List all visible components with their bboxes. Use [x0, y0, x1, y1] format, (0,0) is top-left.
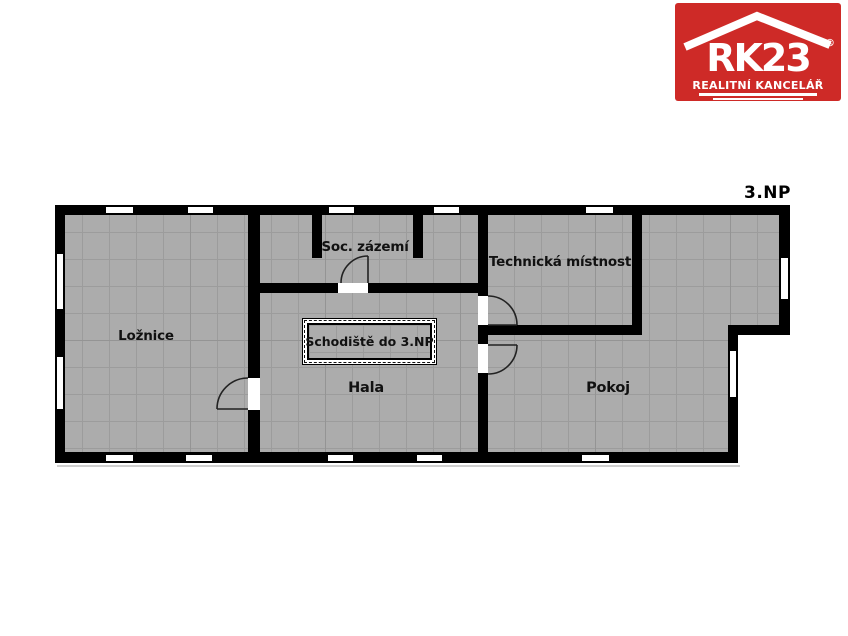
window [105, 206, 134, 214]
window [780, 257, 789, 300]
window [187, 206, 214, 214]
door-opening-soc-zazemi [338, 283, 368, 293]
wall-exterior-left [55, 205, 65, 463]
screenshot: Schodiště do 3.NP Ložnice Soc. zázemí Te… [0, 0, 848, 636]
logo-underline-2 [713, 98, 803, 101]
door-opening-loznice [248, 378, 260, 410]
window [433, 206, 460, 214]
wall-exterior-top [55, 205, 790, 215]
wall-hala-lower [478, 373, 488, 452]
wall-loznice-lower [248, 410, 260, 452]
logo-underline-1 [699, 93, 817, 96]
registered-trademark-icon: ® [825, 38, 835, 49]
staircase: Schodiště do 3.NP [302, 318, 437, 365]
wall-soc-zazemi-right [368, 283, 488, 293]
room-label-pokoj: Pokoj [586, 380, 630, 396]
window [327, 454, 354, 462]
floor-level-label: 3.NP [744, 183, 791, 203]
room-label-soc-zazemi: Soc. zázemí [321, 239, 408, 255]
wall-soc-zazemi-left [248, 283, 338, 293]
window [56, 356, 64, 410]
wall-exterior-bottom [55, 452, 738, 463]
door-opening-pokoj [478, 344, 488, 373]
window [56, 253, 64, 310]
door-opening-technicka [478, 296, 488, 325]
window [581, 454, 610, 462]
window [729, 350, 737, 398]
room-label-hala: Hala [348, 380, 384, 396]
wall-technicka-right [632, 215, 642, 325]
window [328, 206, 355, 214]
logo-brand-text: RK23 [675, 39, 841, 77]
rk23-logo: RK23 ® REALITNÍ KANCELÁŘ [675, 3, 841, 101]
wall-technicka-bottom [478, 325, 642, 335]
window [416, 454, 443, 462]
plan-shadow-line [57, 465, 740, 467]
wall-loznice-upper [248, 215, 260, 378]
window [105, 454, 134, 462]
wall-stub-right [413, 215, 423, 258]
logo-tagline: REALITNÍ KANCELÁŘ [675, 79, 841, 92]
room-label-loznice: Ložnice [118, 328, 174, 344]
wall-hala-upper [478, 215, 488, 296]
window [585, 206, 614, 214]
room-label-technicka-mistnost: Technická místnost [489, 254, 631, 270]
staircase-label: Schodiště do 3.NP [307, 323, 432, 360]
building-notch-exterior [738, 335, 790, 463]
window [185, 454, 213, 462]
